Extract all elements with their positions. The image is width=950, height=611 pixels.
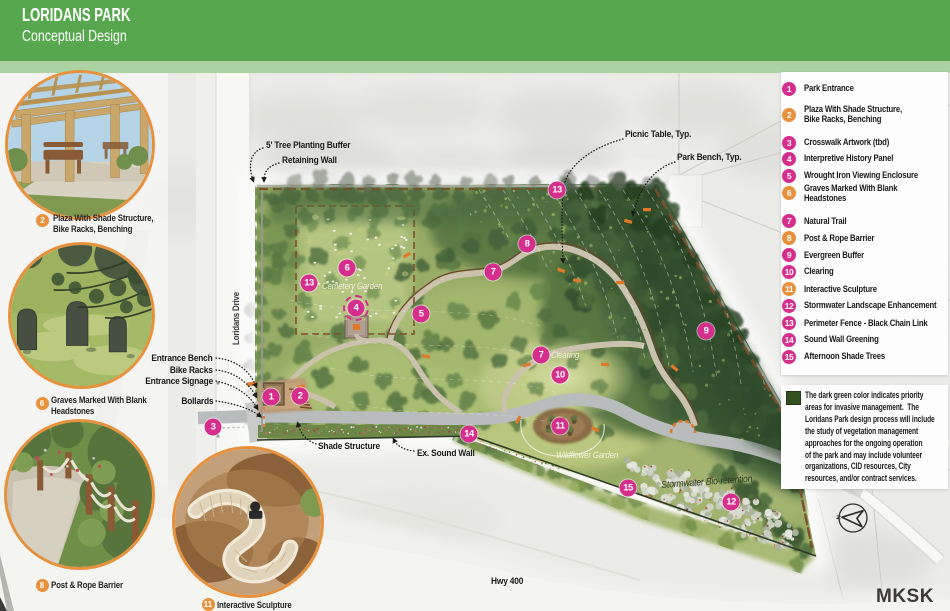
svg-text:N: N	[837, 515, 843, 520]
